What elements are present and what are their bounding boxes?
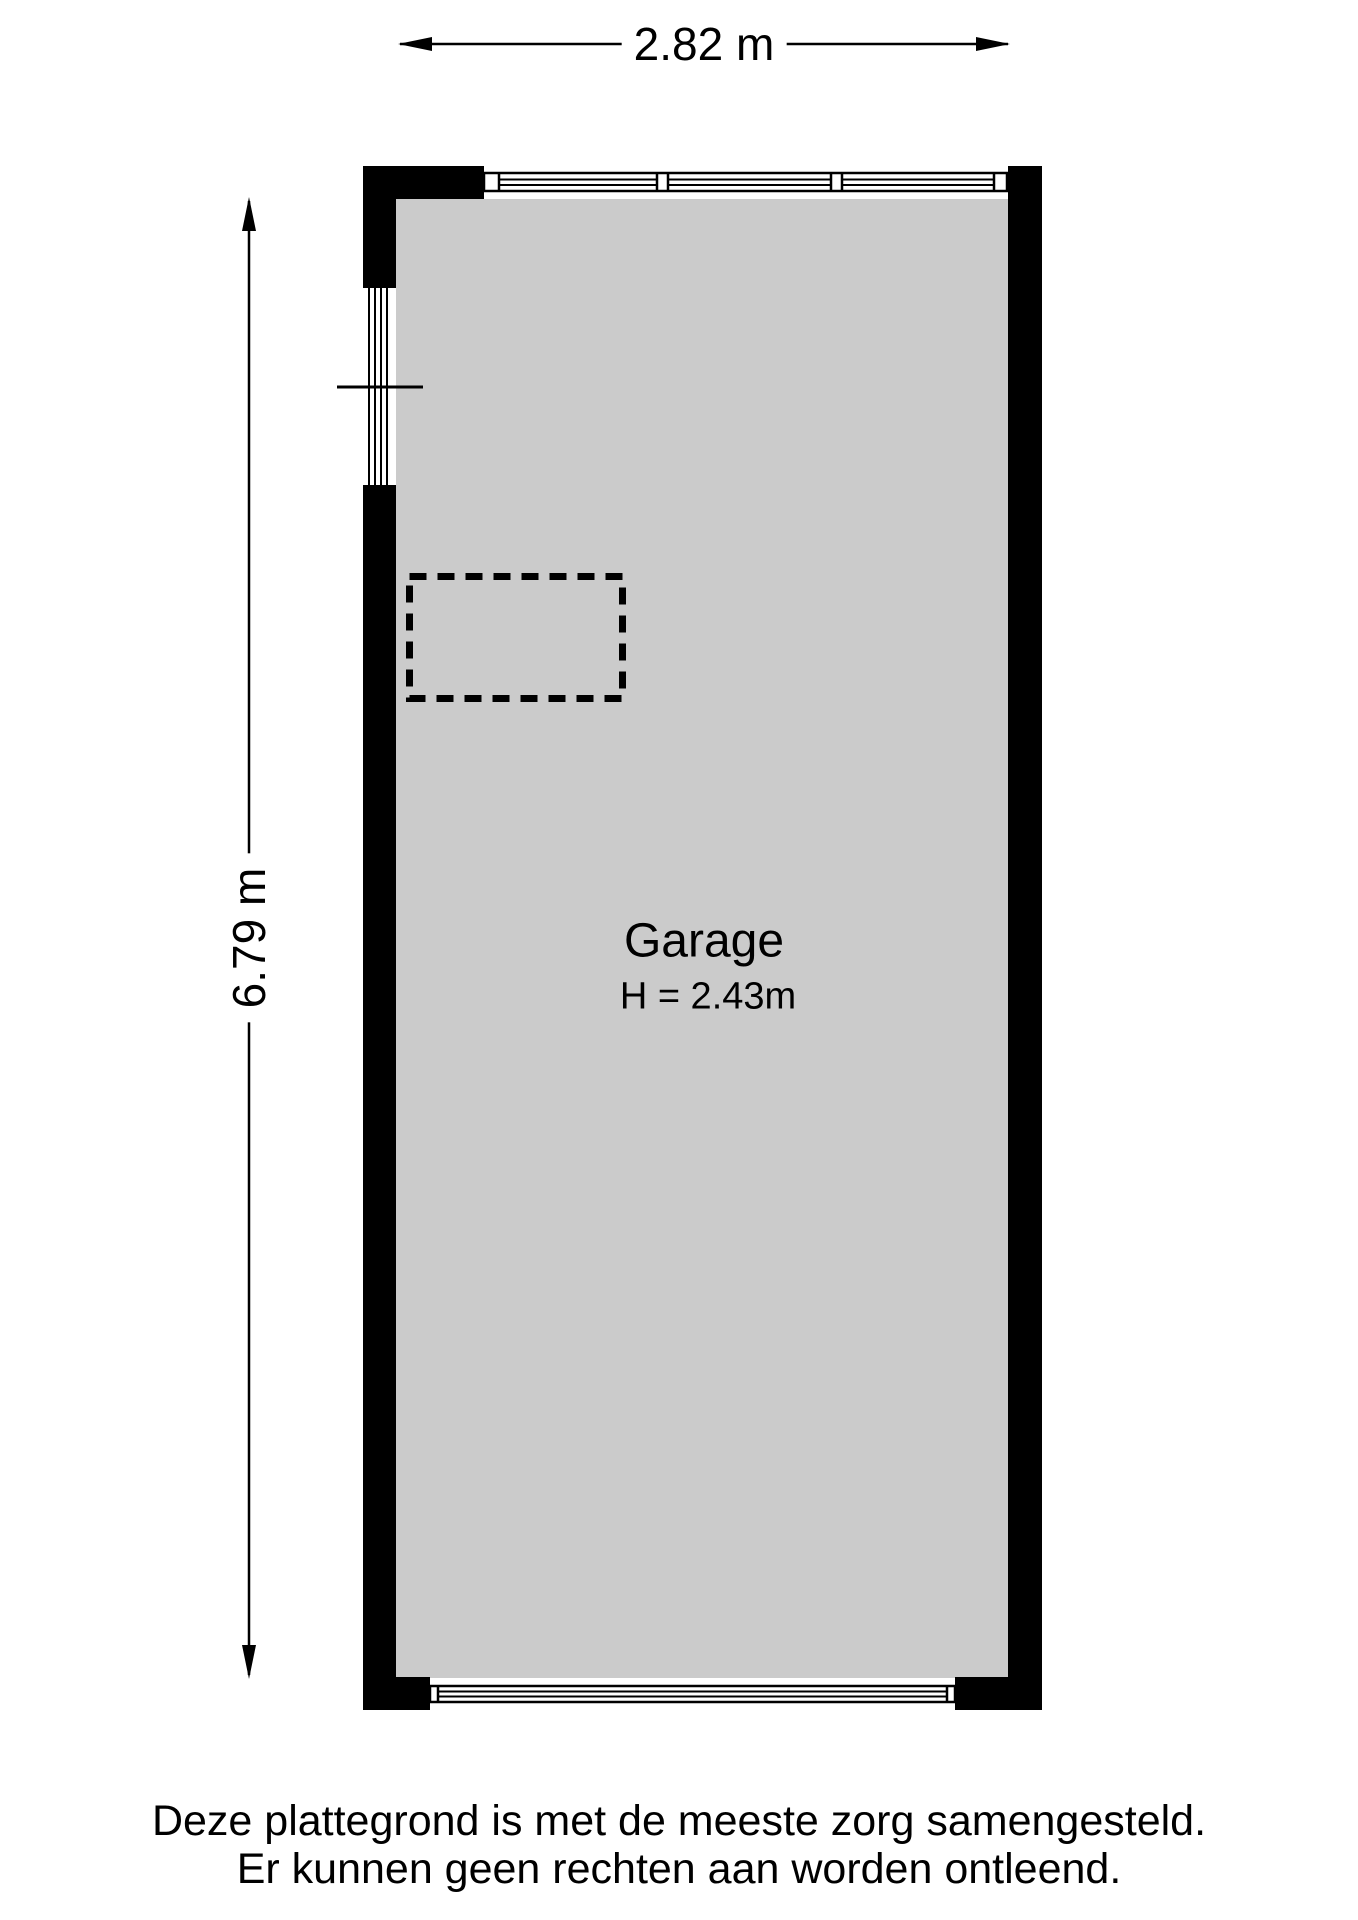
bottom-window-frame: [430, 1686, 955, 1702]
arrowhead-left-icon: [398, 37, 432, 51]
bottom-window: [430, 1686, 955, 1702]
arrowhead-up-icon: [242, 197, 256, 231]
wall-bottom-left-block: [363, 1677, 430, 1710]
disclaimer-line-1: Deze plattegrond is met de meeste zorg s…: [0, 1797, 1358, 1845]
top-window: [484, 173, 1007, 191]
width-dimension-label: 2.82 m: [622, 17, 787, 71]
disclaimer-line-2: Er kunnen geen rechten aan worden ontlee…: [0, 1845, 1358, 1893]
height-dimension-label: 6.79 m: [222, 854, 276, 1023]
floorplan-page: 2.82 m 6.79 m Garage H = 2.43m Deze plat…: [0, 0, 1358, 1920]
top-window-frame: [484, 173, 1007, 191]
room-name-label: Garage: [624, 914, 784, 969]
wall-left-upper-segment: [363, 166, 396, 288]
arrowhead-down-icon: [242, 1645, 256, 1679]
wall-left-lower-segment: [363, 485, 396, 1710]
arrowhead-right-icon: [976, 37, 1010, 51]
room-ceiling-height-label: H = 2.43m: [620, 976, 796, 1019]
wall-right-segment: [1008, 166, 1042, 1710]
disclaimer-text: Deze plattegrond is met de meeste zorg s…: [0, 1797, 1358, 1893]
